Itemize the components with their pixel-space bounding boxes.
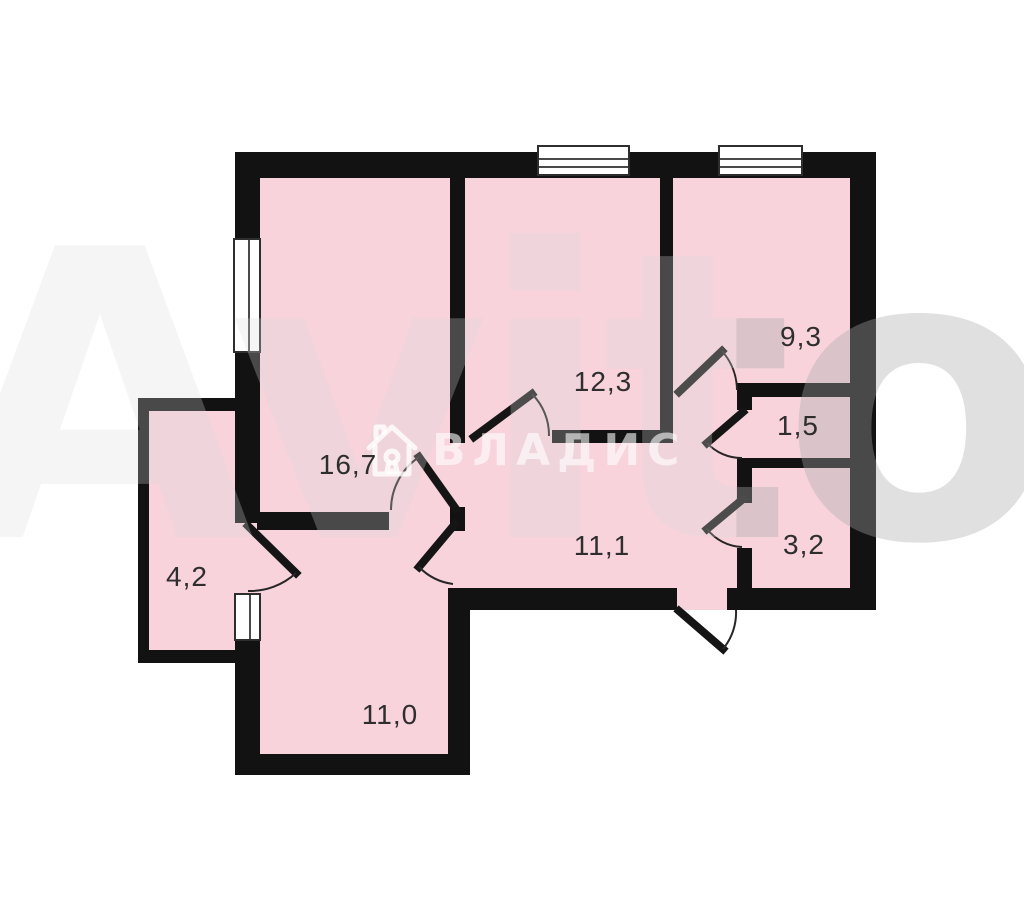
floorplan-image: Avito Avito Avito ВЛАДИС 16,712,39,31,53… bbox=[0, 0, 1024, 898]
door-room-1-5-swing-arc bbox=[707, 443, 742, 458]
door-room-12-3-swing-arc bbox=[532, 394, 549, 436]
door-room-3-2-leaf bbox=[707, 499, 743, 529]
room-1-5-area-label: 1,5 bbox=[777, 410, 819, 442]
room-12-3-area-label: 12,3 bbox=[574, 366, 633, 398]
door-room-11-0-swing-arc bbox=[419, 567, 453, 584]
door-room-16-7-swing-arc bbox=[391, 457, 419, 510]
door-room-4-2-swing-arc bbox=[248, 573, 296, 591]
door-entrance-leaf bbox=[679, 611, 723, 649]
door-swing-layer bbox=[0, 0, 1024, 898]
door-room-12-3-leaf bbox=[474, 394, 532, 437]
room-16-7-area-label: 16,7 bbox=[319, 449, 378, 481]
door-entrance-swing-arc bbox=[723, 610, 736, 649]
door-room-3-2-swing-arc bbox=[707, 529, 742, 547]
door-room-9-3-leaf bbox=[679, 351, 722, 392]
hallway-11-1-area-label: 11,1 bbox=[574, 530, 630, 562]
room-9-3-area-label: 9,3 bbox=[780, 321, 822, 353]
door-room-11-0-leaf bbox=[419, 524, 455, 567]
room-3-2-area-label: 3,2 bbox=[783, 529, 825, 561]
door-room-16-7-leaf bbox=[419, 457, 456, 509]
door-room-1-5-leaf bbox=[707, 412, 743, 443]
room-11-0-area-label: 11,0 bbox=[362, 699, 418, 731]
door-room-4-2-leaf bbox=[248, 526, 296, 573]
door-room-9-3-swing-arc bbox=[722, 351, 737, 390]
room-4-2-area-label: 4,2 bbox=[166, 561, 208, 593]
